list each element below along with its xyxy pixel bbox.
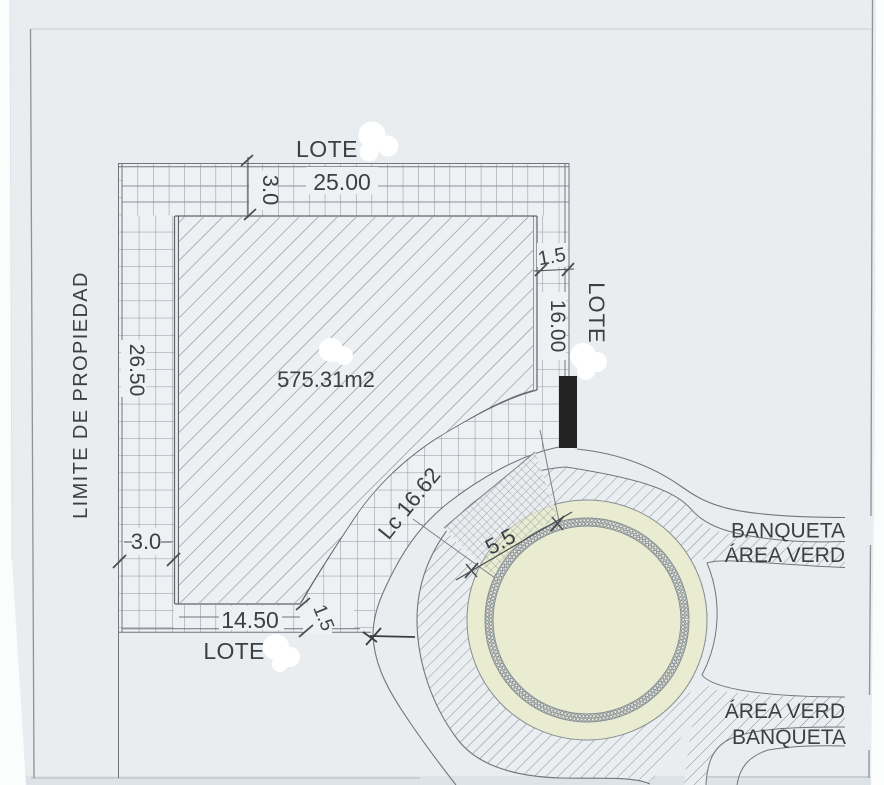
svg-text:14.50: 14.50 bbox=[221, 607, 279, 633]
svg-text:BANQUETA: BANQUETA bbox=[731, 520, 845, 543]
svg-text:ÁREA VERD: ÁREA VERD bbox=[725, 544, 845, 567]
svg-text:25.00: 25.00 bbox=[313, 169, 371, 195]
svg-text:3.0: 3.0 bbox=[258, 175, 283, 206]
svg-text:575.31m2: 575.31m2 bbox=[277, 367, 375, 392]
svg-text:3.0: 3.0 bbox=[131, 529, 162, 554]
svg-text:LOTE: LOTE bbox=[203, 638, 264, 664]
svg-text:26.50: 26.50 bbox=[125, 344, 148, 397]
svg-text:16.00: 16.00 bbox=[546, 300, 569, 353]
svg-text:LOTE: LOTE bbox=[296, 136, 358, 162]
svg-text:BANQUETA: BANQUETA bbox=[732, 726, 846, 749]
svg-text:ÁREA VERD: ÁREA VERD bbox=[725, 700, 845, 723]
svg-text:LIMITE DE PROPIEDAD: LIMITE DE PROPIEDAD bbox=[70, 271, 92, 519]
svg-text:LOTE: LOTE bbox=[584, 282, 609, 343]
